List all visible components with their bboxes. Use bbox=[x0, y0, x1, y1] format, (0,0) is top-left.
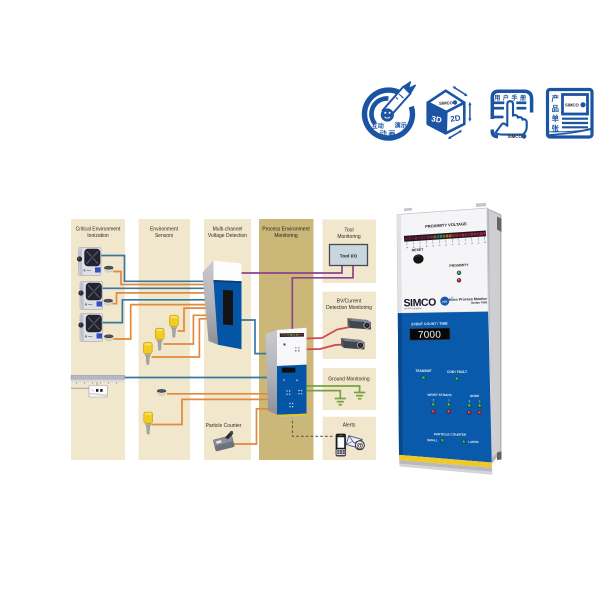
svg-text:Monitoring: Monitoring bbox=[274, 233, 298, 239]
svg-text:SIMCO: SIMCO bbox=[508, 134, 523, 139]
svg-text:单: 单 bbox=[552, 113, 560, 123]
svg-text:Voltage Detection: Voltage Detection bbox=[208, 233, 247, 239]
svg-text:EVENT COUNT / TIME: EVENT COUNT / TIME bbox=[411, 322, 448, 327]
svg-text:PARTICLE COUNTER: PARTICLE COUNTER bbox=[434, 432, 467, 437]
svg-text:Ground Monitoring: Ground Monitoring bbox=[328, 377, 370, 383]
svg-text:BV/Current: BV/Current bbox=[337, 299, 362, 305]
svg-text:动画: 动画 bbox=[380, 130, 397, 139]
svg-text:TRANSMIT: TRANSMIT bbox=[415, 369, 432, 373]
svg-text:ION: ION bbox=[442, 299, 447, 303]
svg-text:Series 7000: Series 7000 bbox=[471, 300, 487, 304]
svg-text:Sensors: Sensors bbox=[155, 233, 174, 239]
svg-text:Environment: Environment bbox=[150, 227, 179, 233]
svg-text:Tool I/O: Tool I/O bbox=[340, 254, 358, 260]
svg-text:GNDS: GNDS bbox=[470, 394, 479, 398]
svg-text:WRIST STRAPS: WRIST STRAPS bbox=[427, 393, 451, 397]
svg-text:Monitoring: Monitoring bbox=[337, 234, 361, 240]
svg-text:Ionization: Ionization bbox=[87, 233, 109, 239]
svg-text:Alerts: Alerts bbox=[343, 423, 356, 429]
svg-text:SIMCO: SIMCO bbox=[565, 103, 579, 108]
svg-text:3D: 3D bbox=[431, 114, 443, 125]
svg-text:Process Environment: Process Environment bbox=[262, 227, 310, 233]
svg-text:Multi-channel: Multi-channel bbox=[213, 227, 243, 233]
svg-text:品: 品 bbox=[552, 104, 560, 113]
svg-text:COM / FAULT: COM / FAULT bbox=[447, 370, 467, 374]
svg-text:演示: 演示 bbox=[395, 122, 407, 130]
svg-text:产: 产 bbox=[552, 93, 560, 103]
svg-text:SIMCO: SIMCO bbox=[439, 100, 454, 106]
svg-text:Particle Counter: Particle Counter bbox=[206, 423, 242, 429]
svg-text:7000: 7000 bbox=[418, 330, 441, 341]
svg-text:SMALL: SMALL bbox=[427, 438, 438, 442]
svg-text:@: @ bbox=[356, 443, 363, 450]
svg-text:Detection Monitoring: Detection Monitoring bbox=[326, 305, 372, 311]
svg-text:Tool: Tool bbox=[344, 228, 353, 234]
svg-text:Critical Environment: Critical Environment bbox=[76, 227, 121, 233]
svg-text:LARGE: LARGE bbox=[468, 440, 479, 444]
svg-text:RESET: RESET bbox=[412, 248, 425, 253]
svg-text:2D: 2D bbox=[450, 113, 462, 123]
